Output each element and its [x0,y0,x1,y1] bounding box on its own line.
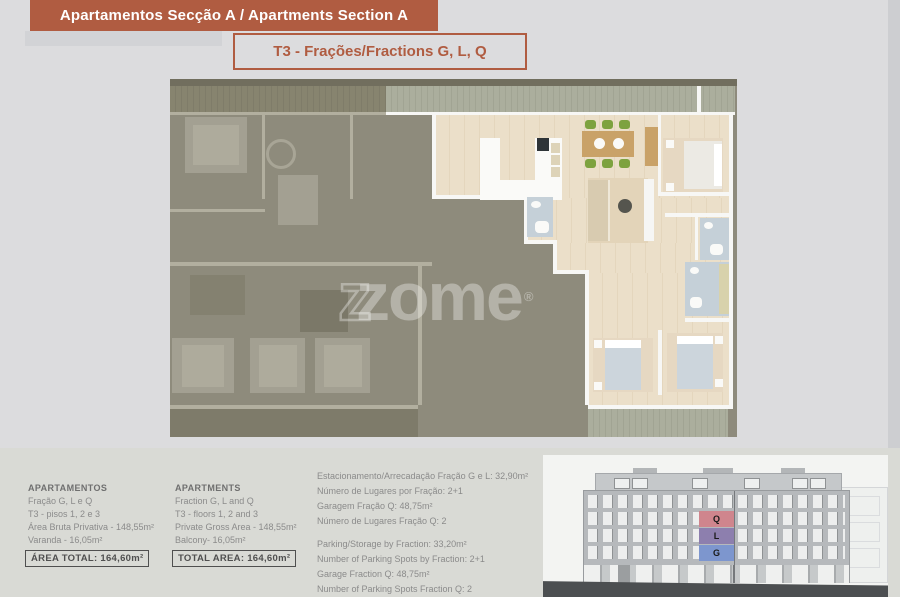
cooktop [537,138,549,151]
sketch-window [848,496,880,516]
expansion-joint-line [734,491,735,566]
coffee-table [618,199,632,213]
bed-pillows [605,340,641,348]
parking-pt-garage-q: Garagem Fração Q: 48,75m² [317,499,528,514]
brochure-page: Apartamentos Secção A / Apartments Secti… [0,0,900,597]
pt-line-floors: T3 - pisos 1, 2 e 3 [28,508,154,521]
wall-master-bedroom [658,115,661,192]
bed-pillows [714,144,722,186]
unit-l-highlight: L [699,528,734,544]
window-row [588,495,845,508]
attic-window [744,478,760,489]
bathroom-sink [531,201,541,208]
bathroom-sink [704,222,713,229]
nightstand [666,140,674,148]
dim-wall [350,115,353,199]
balcony-dimmed [170,86,386,113]
apartments-pt-heading: APARTAMENTOS [28,482,154,495]
floor-plan-image: z zome ® [170,79,737,437]
en-line-gross-area: Private Gross Area - 148,55m² [175,521,297,534]
bed-pillows [677,336,713,344]
dim-wall [170,209,265,212]
zome-watermark: z zome ® [338,265,533,329]
parking-pt-spots: Número de Lugares por Fração: 2+1 [317,484,528,499]
attic-window [810,478,826,489]
wall-corridor-bottom [553,270,589,274]
sideboard [645,127,658,166]
plan-top-edge [170,79,737,86]
en-line-balcony: Balcony- 16,05m² [175,534,297,547]
wall-bath-area-top [665,213,733,217]
parking-en-spots-q: Number of Parking Spots Fraction Q: 2 [317,582,528,597]
nightstand [715,336,723,344]
dim-wall [262,115,265,199]
balcony-bottom [588,409,728,437]
wall-entry-left [432,115,436,198]
dining-chair [619,120,630,129]
parking-en-garage-q: Garage Fraction Q: 48,75m² [317,567,528,582]
wall-balcony-bottom [588,405,733,409]
parking-en-spots: Number of Parking Spots by Fraction: 2+1 [317,552,528,567]
toilet [535,221,549,233]
kitchen-counter-left [480,138,500,184]
wall-bath2-bottom [685,318,733,322]
apartments-en-heading: APARTMENTS [175,482,297,495]
watermark-text: zome [356,265,522,329]
dim-bed-sheet [182,345,224,387]
table-plate [594,138,605,149]
dim-balcony-bottom [170,409,418,437]
kitchen-appliance [551,155,560,165]
sofa [588,180,610,241]
apartments-pt-column: APARTAMENTOS Fração G, L e Q T3 - pisos … [28,482,154,547]
building-elevation-image: Q L G [543,455,888,597]
attic-window [692,478,708,489]
balcony-divider-wall [697,86,701,113]
parking-en-storage: Parking/Storage by Fraction: 33,20m² [317,537,528,552]
dining-chair [585,120,596,129]
dim-round-table [266,139,296,169]
nightstand [666,183,674,191]
banner-shadow [25,31,222,46]
spacer [317,529,528,537]
pt-line-balcony: Varanda - 16,05m² [28,534,154,547]
unit-q-highlight: Q [699,511,734,527]
tv-unit [644,179,654,241]
dining-table [582,131,634,157]
balcony-top [386,86,735,113]
fractions-subtitle-box: T3 - Frações/Fractions G, L, Q [233,33,527,70]
dim-bed-sheet [193,125,239,165]
parking-info-column: Estacionamento/Arrecadação Fração G e L:… [317,469,528,597]
attic-window [614,478,630,489]
dining-chair [602,159,613,168]
en-line-fraction: Fraction G, L and Q [175,495,297,508]
unit-g-highlight: G [699,545,734,561]
wall-bedrooms-left [585,273,589,405]
wall-master-bottom [658,192,733,196]
dining-chair [619,159,630,168]
parking-pt-storage: Estacionamento/Arrecadação Fração G e L:… [317,469,528,484]
dim-bed-sheet [259,345,297,387]
wall-bath1-left [695,217,698,260]
building-facade: Q L G [583,490,850,567]
toilet [690,297,702,308]
nightstand [594,382,602,390]
bathtub [719,264,729,314]
wall-right-exterior [729,115,733,405]
dining-chair [602,120,613,129]
kitchen-appliance [551,167,560,177]
attic-window [632,478,648,489]
wall-dim-top [170,112,386,115]
area-total-pt-box: ÁREA TOTAL: 164,60m² [25,550,149,567]
total-area-en-box: TOTAL AREA: 164,60m² [172,550,296,567]
bathroom-sink [690,267,699,274]
wall-corridor-left [553,243,557,273]
nightstand [594,340,602,348]
table-plate [613,138,624,149]
dim-bed-sheet [324,345,362,387]
pt-line-fraction: Fração G, L e Q [28,495,154,508]
kitchen-appliance [551,143,560,153]
en-line-floors: T3 - floors 1, 2 and 3 [175,508,297,521]
ground-joint [733,565,735,583]
entrance-door [618,565,630,583]
dining-chair [585,159,596,168]
toilet [710,244,723,255]
dim-furniture [278,175,318,225]
apartments-en-column: APARTMENTS Fraction G, L and Q T3 - floo… [175,482,297,547]
registered-mark: ® [524,265,534,329]
nightstand [715,379,723,387]
parking-pt-spots-q: Número de Lugares Fração Q: 2 [317,514,528,529]
sketch-window [848,522,880,542]
sketch-window [848,548,880,568]
attic-window [792,478,808,489]
pt-line-gross-area: Área Bruta Privativa - 148,55m² [28,521,154,534]
section-title-banner: Apartamentos Secção A / Apartments Secti… [30,0,438,31]
wall-between-bedrooms [658,330,662,395]
dim-room [190,275,245,315]
